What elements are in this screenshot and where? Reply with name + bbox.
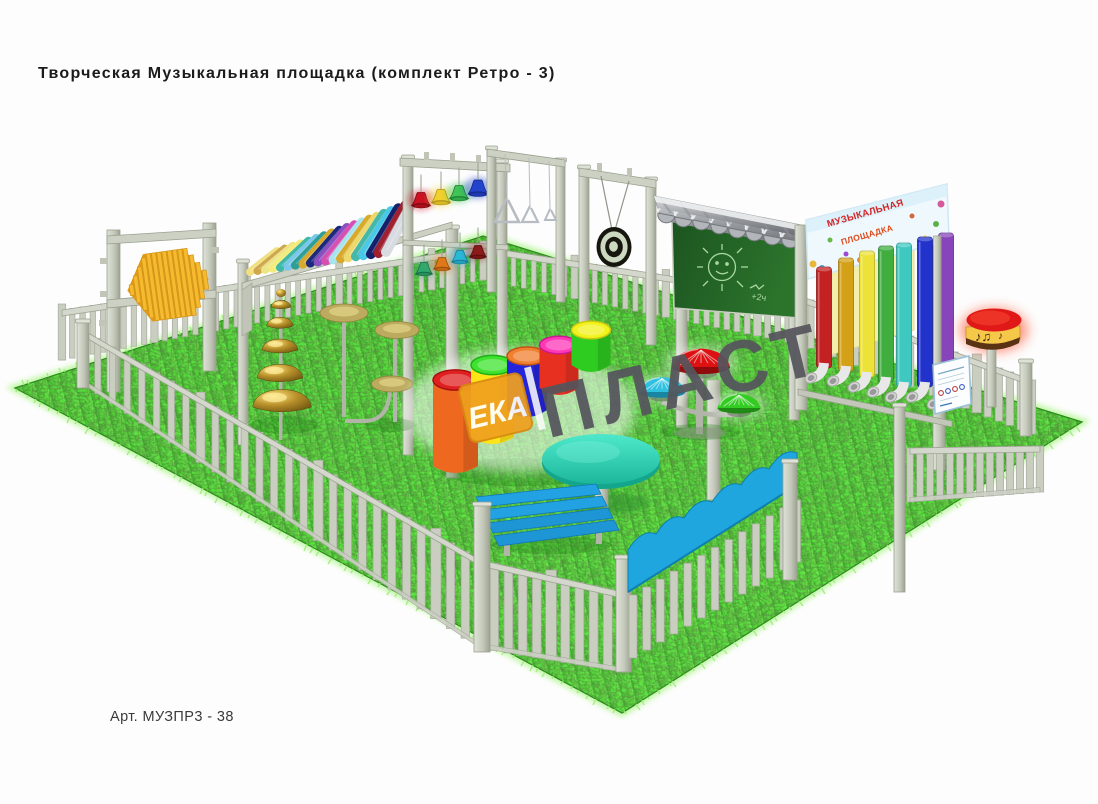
svg-text:Арт. МУЗПР3 - 38: Арт. МУЗПР3 - 38 bbox=[110, 709, 234, 725]
svg-text:Творческая Музыкальная площадк: Творческая Музыкальная площадка (комплек… bbox=[38, 65, 556, 82]
svg-text:♪: ♪ bbox=[998, 331, 1003, 342]
svg-text:♪♫: ♪♫ bbox=[975, 329, 991, 344]
svg-text:+2ч: +2ч bbox=[751, 291, 768, 303]
